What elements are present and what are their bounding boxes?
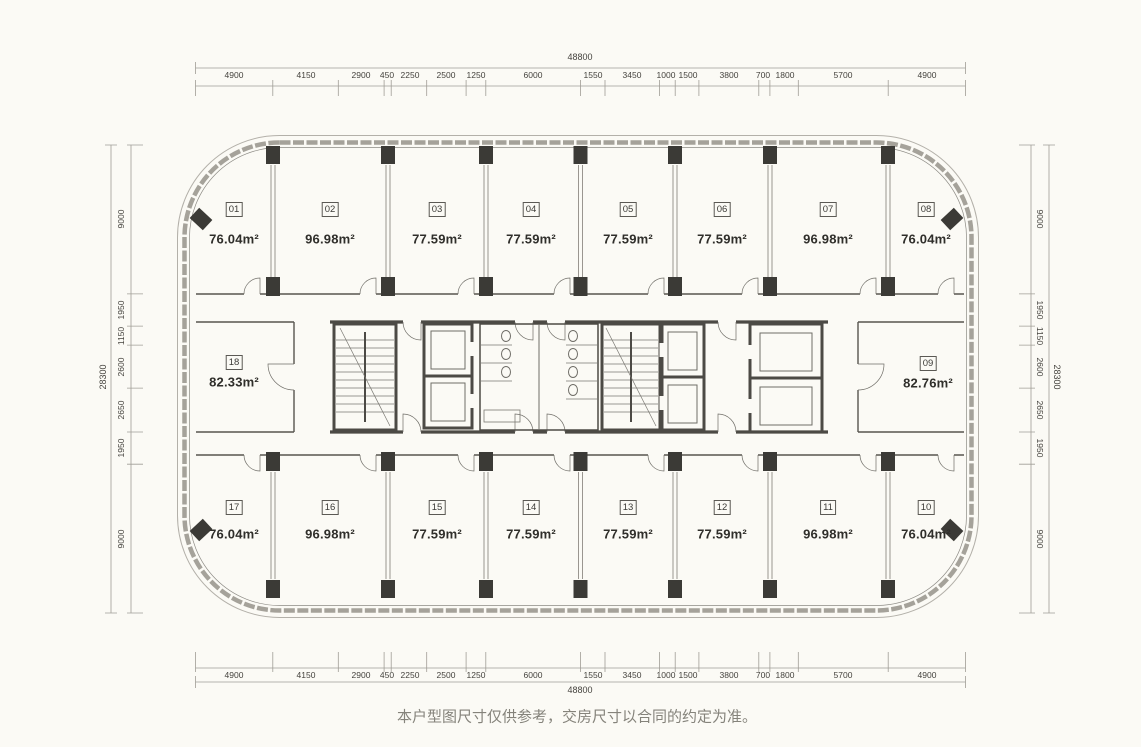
dim-bottom-seg: 2500: [437, 670, 456, 680]
unit-10-area: 76.04m²: [901, 527, 951, 542]
dim-top-seg: 1800: [776, 70, 795, 80]
unit-18-area: 82.33m²: [209, 375, 259, 390]
unit-15-area: 77.59m²: [412, 527, 462, 542]
dim-left-seg: 2650: [116, 401, 126, 420]
dim-bottom-seg: 450: [380, 670, 394, 680]
door-arcs: [244, 278, 954, 471]
dim-bottom-seg: 2250: [401, 670, 420, 680]
dim-bottom-seg: 4900: [225, 670, 244, 680]
unit-07-area: 96.98m²: [803, 232, 853, 247]
dim-right-total: 28300: [1052, 364, 1062, 389]
dim-top-seg: 4900: [918, 70, 937, 80]
unit-16-area: 96.98m²: [305, 527, 355, 542]
unit-01-number: 01: [226, 199, 243, 217]
dim-right-seg: 9000: [1035, 530, 1045, 549]
dim-top-seg: 5700: [834, 70, 853, 80]
floor-plan-drawing: [0, 0, 1141, 747]
stair-left: [334, 324, 396, 430]
dim-right-seg: 2650: [1035, 401, 1045, 420]
dim-left-seg: 9000: [116, 530, 126, 549]
disclaimer-text: 本户型图尺寸仅供参考，交房尺寸以合同的约定为准。: [397, 706, 757, 727]
dim-bottom-seg: 5700: [834, 670, 853, 680]
unit-08-area: 76.04m²: [901, 232, 951, 247]
dim-left-seg: 1150: [116, 327, 126, 345]
unit-12-area: 77.59m²: [697, 527, 747, 542]
dim-left-seg: 1950: [116, 439, 126, 458]
stair-right: [602, 324, 660, 430]
unit-04-area: 77.59m²: [506, 232, 556, 247]
elevator-bank-c: [748, 324, 823, 432]
sink-counter: [484, 410, 520, 422]
dim-top-seg: 4900: [225, 70, 244, 80]
dim-bottom-seg: 4150: [297, 670, 316, 680]
dim-bottom-seg: 1550: [584, 670, 603, 680]
dim-top-seg: 3800: [720, 70, 739, 80]
unit-05-number: 05: [620, 199, 637, 217]
elevator-bank-a: [424, 324, 475, 428]
dim-top-total: 48800: [567, 52, 592, 62]
unit-03-area: 77.59m²: [412, 232, 462, 247]
central-core: [330, 319, 828, 436]
dim-top-seg: 1000: [657, 70, 676, 80]
dim-bottom-seg: 2900: [352, 670, 371, 680]
dim-top-seg: 1500: [679, 70, 698, 80]
unit-04-number: 04: [523, 199, 540, 217]
wc-block: [480, 324, 598, 430]
dim-bottom-seg: 6000: [524, 670, 543, 680]
dim-left-total: 28300: [98, 364, 108, 389]
dim-top-seg: 3450: [623, 70, 642, 80]
side-unit-walls: [196, 322, 964, 432]
building-facade: [178, 136, 979, 618]
dim-left-seg: 2600: [116, 358, 126, 377]
unit-17-area: 76.04m²: [209, 527, 259, 542]
dim-right-seg: 1950: [1035, 301, 1045, 320]
unit-13-area: 77.59m²: [603, 527, 653, 542]
elevator-bank-b: [660, 324, 705, 430]
dim-right-seg: 1150: [1035, 327, 1045, 345]
dim-top-seg: 700: [756, 70, 770, 80]
unit-02-area: 96.98m²: [305, 232, 355, 247]
dim-bottom-seg: 3450: [623, 670, 642, 680]
dim-top-seg: 4150: [297, 70, 316, 80]
dim-bottom-total: 48800: [567, 685, 592, 695]
unit-15-number: 15: [429, 497, 446, 515]
unit-12-number: 12: [714, 497, 731, 515]
dim-top-seg: 2900: [352, 70, 371, 80]
dim-top-seg: 2250: [401, 70, 420, 80]
unit-14-area: 77.59m²: [506, 527, 556, 542]
unit-18-number: 18: [226, 352, 243, 370]
unit-11-area: 96.98m²: [803, 527, 853, 542]
unit-09-number: 09: [920, 353, 937, 371]
unit-09-area: 82.76m²: [903, 376, 953, 391]
dim-left-seg: 9000: [116, 210, 126, 229]
unit-11-number: 11: [820, 497, 836, 515]
dim-right-seg: 1950: [1035, 439, 1045, 458]
dim-bottom-seg: 1500: [679, 670, 698, 680]
dim-top-seg: 1550: [584, 70, 603, 80]
dim-right-seg: 2600: [1035, 358, 1045, 377]
unit-07-number: 07: [820, 199, 837, 217]
unit-05-area: 77.59m²: [603, 232, 653, 247]
unit-14-number: 14: [523, 497, 540, 515]
unit-13-number: 13: [620, 497, 637, 515]
dim-bottom-seg: 1000: [657, 670, 676, 680]
unit-17-number: 17: [226, 497, 243, 515]
corridor-walls: [196, 278, 964, 471]
unit-08-number: 08: [918, 199, 935, 217]
dim-top-seg: 450: [380, 70, 394, 80]
dim-right-seg: 9000: [1035, 210, 1045, 229]
dim-bottom-seg: 3800: [720, 670, 739, 680]
unit-16-number: 16: [322, 497, 339, 515]
unit-01-area: 76.04m²: [209, 232, 259, 247]
dim-left-seg: 1950: [116, 301, 126, 320]
dim-bottom-seg: 1800: [776, 670, 795, 680]
dim-top-seg: 6000: [524, 70, 543, 80]
unit-03-number: 03: [429, 199, 446, 217]
unit-10-number: 10: [918, 497, 935, 515]
dim-bottom-seg: 1250: [467, 670, 486, 680]
dim-top-seg: 1250: [467, 70, 486, 80]
dim-top-seg: 2500: [437, 70, 456, 80]
dim-bottom-seg: 4900: [918, 670, 937, 680]
dim-bottom-seg: 700: [756, 670, 770, 680]
unit-06-area: 77.59m²: [697, 232, 747, 247]
unit-06-number: 06: [714, 199, 731, 217]
unit-02-number: 02: [322, 199, 339, 217]
floor-plan-page: 48800 4900 4150 2900 450 2250 2500 1250 …: [0, 0, 1141, 747]
